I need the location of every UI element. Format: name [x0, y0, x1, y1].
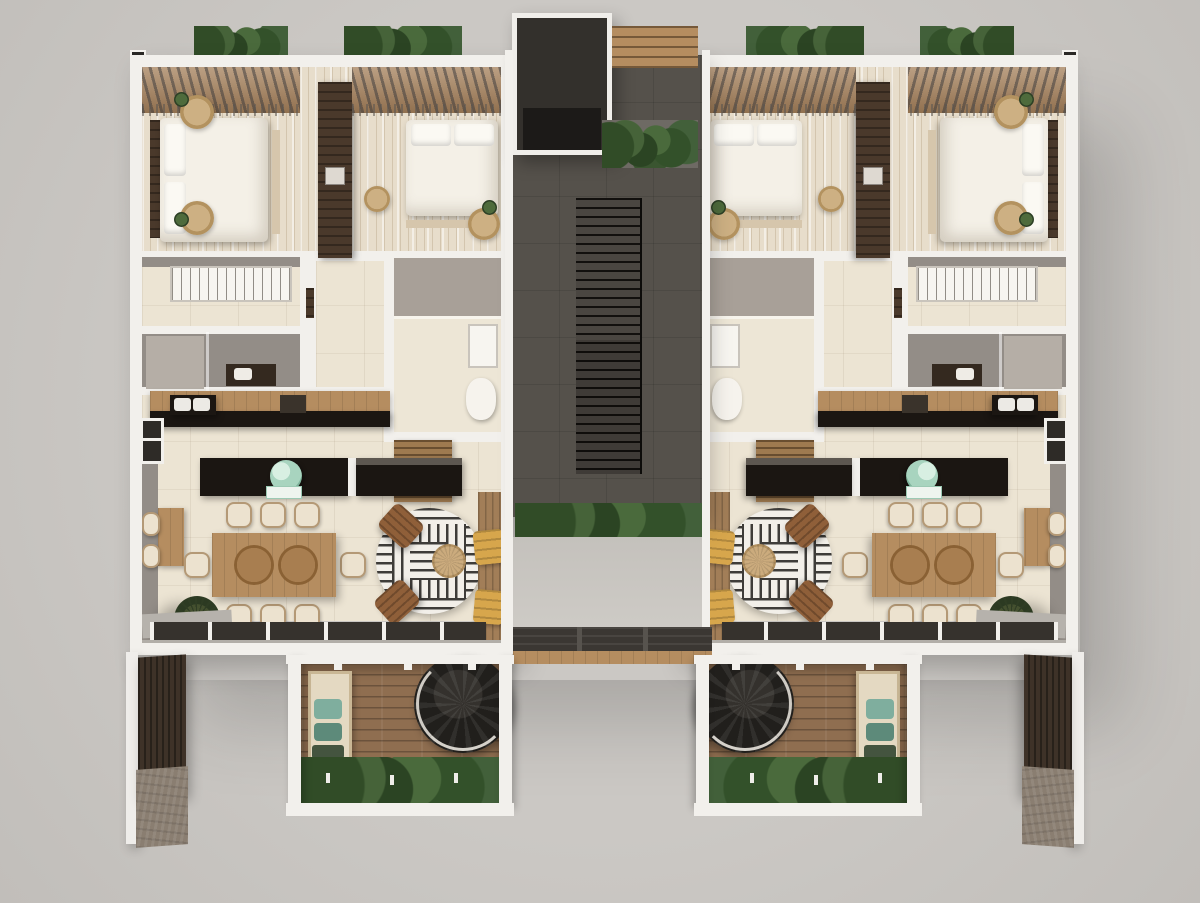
patio-hedge [706, 757, 910, 809]
circulation-core [505, 10, 710, 665]
daybed-pillow-teal [314, 723, 342, 741]
patio-pergola-rafter [732, 655, 740, 670]
patio-pergola-rafter [404, 655, 412, 670]
core-side-wall [505, 50, 513, 630]
patio-side-wall [499, 655, 512, 805]
patio-left [286, 655, 514, 823]
street-facade-right [1016, 650, 1088, 850]
patio-bottom-wall [286, 803, 514, 816]
core-planter-box [602, 120, 698, 168]
facade-concrete-base [136, 766, 188, 848]
floor-plan-render [0, 0, 1200, 903]
apartment-unit-right [693, 40, 1078, 665]
patio-side-wall [907, 655, 920, 805]
patio-right [694, 655, 922, 823]
elevator-shaft-opening [523, 108, 601, 150]
daybed-pillow-teal [866, 723, 894, 741]
patio-pergola-rafter [468, 655, 476, 670]
patio-bottom-wall [694, 803, 922, 816]
patio-pergola-rafter [866, 655, 874, 670]
hedge-light-post [814, 775, 818, 785]
facade-concrete-base [1022, 766, 1074, 848]
hedge-light-post [390, 775, 394, 785]
daybed-pillow-teal [314, 699, 342, 719]
daybed-pillow-teal [866, 699, 894, 719]
pergola-bridge-fascia [513, 651, 712, 664]
spiral-staircase-rim [416, 657, 510, 751]
hedge-light-post [326, 773, 330, 783]
patio-side-wall [288, 655, 301, 805]
patio-hedge [298, 757, 502, 809]
core-shrub-bed [515, 503, 702, 537]
hedge-light-post [454, 773, 458, 783]
unit-outer-walls [695, 55, 1078, 655]
staircase-lower-flight-shade [576, 340, 640, 474]
unit-outer-walls [130, 55, 513, 655]
apartment-unit-left [130, 40, 515, 665]
core-side-wall [702, 50, 710, 630]
core-timber-threshold [612, 26, 698, 68]
patio-side-wall [696, 655, 709, 805]
hedge-light-post [750, 773, 754, 783]
spiral-staircase [414, 655, 512, 753]
patio-pergola-rafter [796, 655, 804, 670]
patio-pergola-beam [286, 655, 514, 664]
patio-pergola-rafter [334, 655, 342, 670]
hedge-light-post [878, 773, 882, 783]
core-south-wall-face [513, 537, 704, 631]
patio-pergola-beam [694, 655, 922, 664]
spiral-staircase [696, 655, 794, 753]
street-facade-left [122, 650, 194, 850]
spiral-staircase-rim [698, 657, 792, 751]
